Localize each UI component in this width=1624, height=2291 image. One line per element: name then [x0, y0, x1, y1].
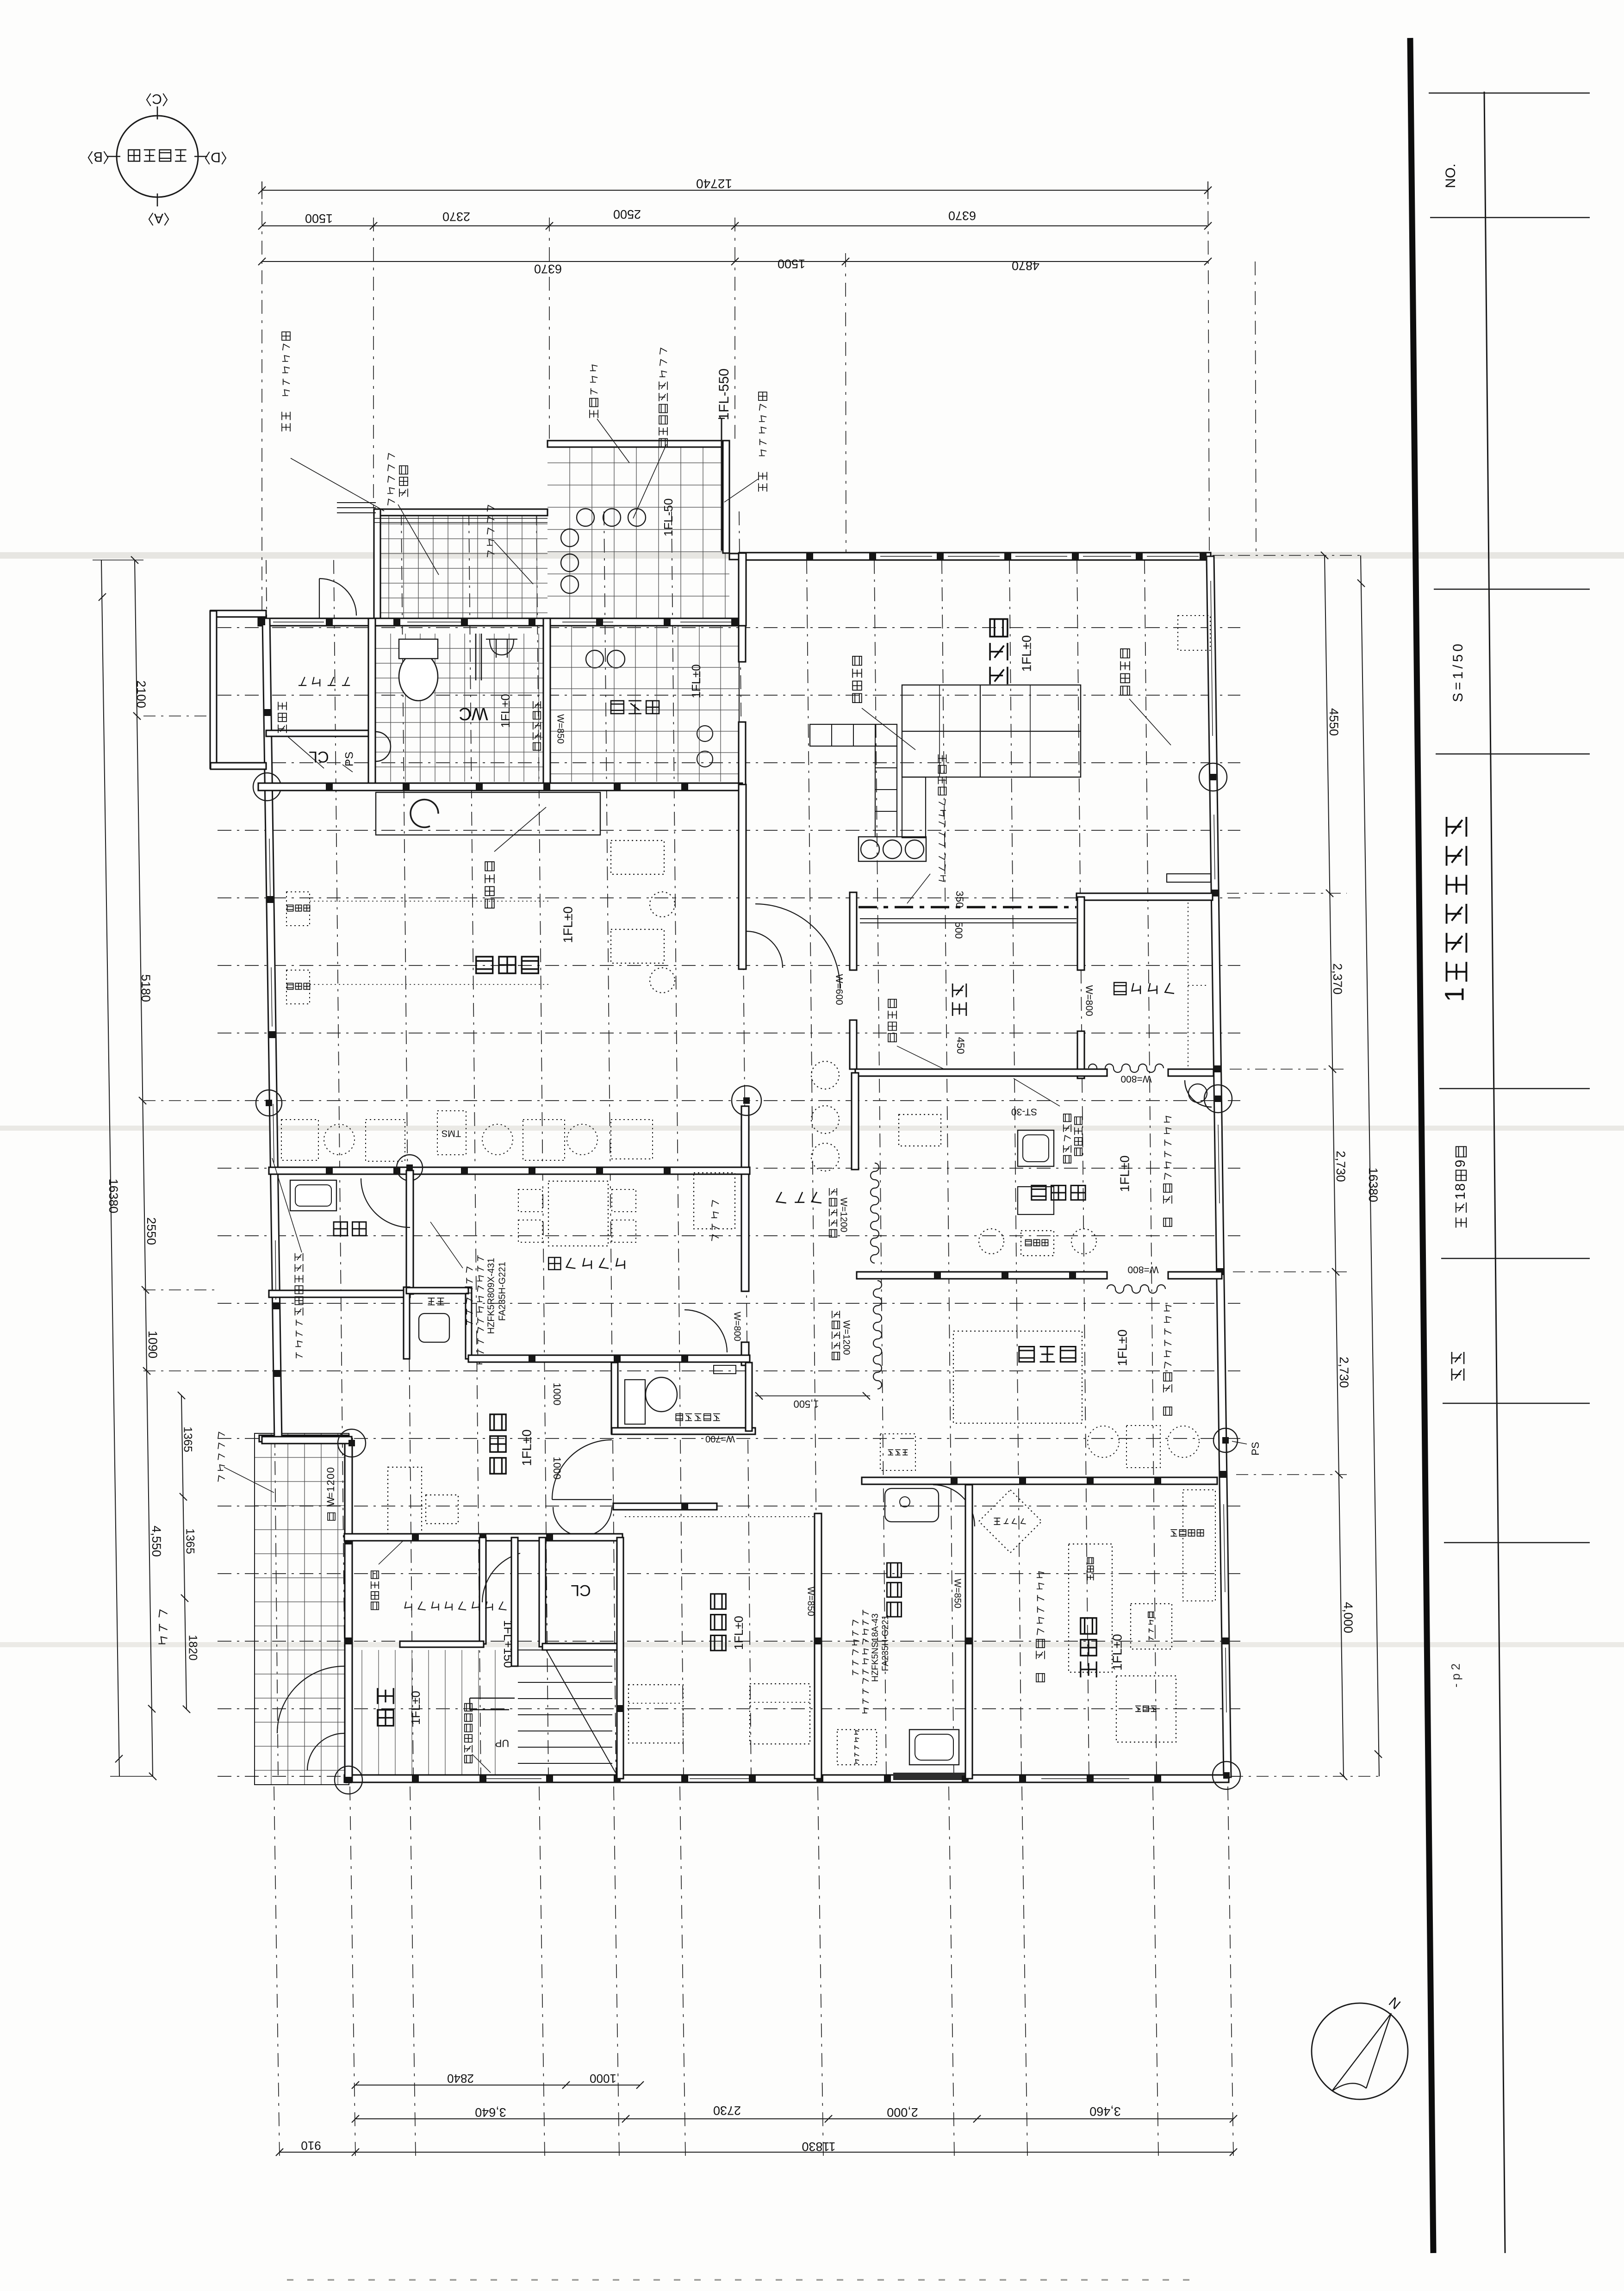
svg-text:6370: 6370	[948, 209, 976, 223]
svg-text:1FL±0: 1FL±0	[1115, 1329, 1129, 1366]
svg-text:2,730: 2,730	[1337, 1357, 1351, 1388]
svg-text:1FL±0: 1FL±0	[1110, 1634, 1124, 1670]
svg-text:9: 9	[1453, 1160, 1468, 1168]
svg-text:2,730: 2,730	[1334, 1151, 1348, 1182]
svg-text:〈A〉: 〈A〉	[140, 211, 177, 226]
svg-text:S=1/50: S=1/50	[1450, 641, 1466, 702]
svg-text:1FL±0: 1FL±0	[409, 1691, 423, 1725]
svg-text:4,000: 4,000	[1341, 1602, 1355, 1633]
svg-text:4870: 4870	[1012, 259, 1039, 273]
svg-text:=: =	[325, 1492, 336, 1498]
svg-text:- p 2: - p 2	[1449, 1663, 1462, 1687]
svg-text:W=800: W=800	[1120, 1073, 1151, 1084]
svg-text:PS: PS	[343, 752, 355, 766]
svg-text:910: 910	[301, 2139, 321, 2153]
svg-text:W=850: W=850	[555, 714, 566, 744]
svg-text:2500: 2500	[613, 207, 641, 221]
svg-text:16380: 16380	[1366, 1167, 1380, 1202]
svg-text:8: 8	[1453, 1183, 1468, 1191]
svg-text:1: 1	[325, 1486, 336, 1492]
svg-text:1: 1	[1453, 1192, 1468, 1200]
svg-text:1365: 1365	[183, 1528, 196, 1554]
svg-text:2100: 2100	[134, 680, 148, 708]
svg-text:1FL±0: 1FL±0	[519, 1429, 534, 1466]
svg-text:W=700: W=700	[705, 1434, 735, 1444]
svg-text:WC: WC	[459, 704, 488, 723]
svg-text:1FL±0: 1FL±0	[498, 694, 512, 728]
svg-text:5180: 5180	[139, 974, 153, 1002]
svg-text:4550: 4550	[1327, 708, 1341, 736]
svg-text:2730: 2730	[713, 2104, 741, 2117]
svg-text:W=800: W=800	[732, 1312, 742, 1341]
svg-text:UP: UP	[495, 1737, 510, 1749]
svg-text:1FL-50: 1FL-50	[661, 498, 675, 536]
svg-text:HZFK5NS18A-43: HZFK5NS18A-43	[871, 1613, 880, 1682]
svg-text:1: 1	[1439, 987, 1469, 1002]
svg-text:1FL±0: 1FL±0	[689, 664, 703, 698]
svg-text:1000: 1000	[590, 2072, 616, 2086]
svg-text:1500: 1500	[305, 212, 333, 225]
svg-text:NO.: NO.	[1443, 163, 1458, 188]
svg-text:3,460: 3,460	[1089, 2104, 1121, 2118]
svg-text:W=600: W=600	[834, 974, 844, 1005]
svg-text:1FL±0: 1FL±0	[560, 906, 575, 943]
svg-text:500: 500	[953, 922, 964, 939]
svg-text:〈B〉: 〈B〉	[80, 149, 117, 164]
svg-text:2: 2	[325, 1480, 336, 1485]
svg-text:〈C〉: 〈C〉	[138, 91, 176, 106]
svg-text:W=800: W=800	[1127, 1264, 1158, 1275]
svg-text:PS: PS	[1250, 1442, 1261, 1455]
svg-text:W=800: W=800	[1083, 985, 1094, 1016]
svg-text:W=850: W=850	[806, 1587, 816, 1616]
svg-text:W=850: W=850	[952, 1579, 963, 1608]
svg-text:12740: 12740	[696, 177, 732, 191]
svg-text:FA235H-G221: FA235H-G221	[497, 1262, 507, 1321]
svg-text:ST-30: ST-30	[1011, 1106, 1037, 1117]
svg-text:W=1200: W=1200	[839, 1197, 849, 1232]
svg-text:350: 350	[954, 891, 965, 908]
svg-text:1000: 1000	[551, 1383, 563, 1406]
svg-text:1FL±0: 1FL±0	[1019, 635, 1033, 672]
svg-text:1FL±0: 1FL±0	[1117, 1155, 1132, 1192]
svg-text:2,000: 2,000	[887, 2105, 918, 2119]
svg-text:1,500: 1,500	[793, 1398, 819, 1410]
svg-text:0: 0	[325, 1474, 336, 1479]
svg-text:2370: 2370	[442, 210, 470, 224]
svg-text:1090: 1090	[146, 1331, 160, 1358]
svg-text:1365: 1365	[181, 1426, 194, 1452]
svg-text:16380: 16380	[106, 1178, 120, 1213]
svg-text:0: 0	[325, 1467, 336, 1473]
svg-text:W=1200: W=1200	[841, 1320, 852, 1355]
svg-text:CL: CL	[571, 1581, 591, 1599]
svg-text:1FL-550: 1FL-550	[716, 368, 732, 420]
svg-text:3,640: 3,640	[475, 2105, 506, 2119]
svg-text:6370: 6370	[534, 262, 562, 276]
svg-text:11830: 11830	[802, 2140, 835, 2154]
svg-text:FA235H-G221: FA235H-G221	[881, 1615, 890, 1671]
svg-text:1820: 1820	[186, 1635, 199, 1661]
svg-text:1500: 1500	[778, 257, 805, 271]
svg-text:450: 450	[955, 1037, 966, 1054]
svg-text:2840: 2840	[447, 2072, 474, 2086]
svg-text:2,370: 2,370	[1331, 963, 1344, 995]
svg-text:CL: CL	[309, 748, 329, 766]
svg-text:TMS: TMS	[442, 1128, 461, 1139]
svg-text:2550: 2550	[144, 1217, 158, 1245]
svg-text:4,550: 4,550	[149, 1525, 163, 1557]
svg-text:HZFK5R809X-431: HZFK5R809X-431	[486, 1258, 496, 1334]
svg-text:1FL±0: 1FL±0	[732, 1616, 746, 1650]
svg-text:〈D〉: 〈D〉	[197, 149, 235, 165]
